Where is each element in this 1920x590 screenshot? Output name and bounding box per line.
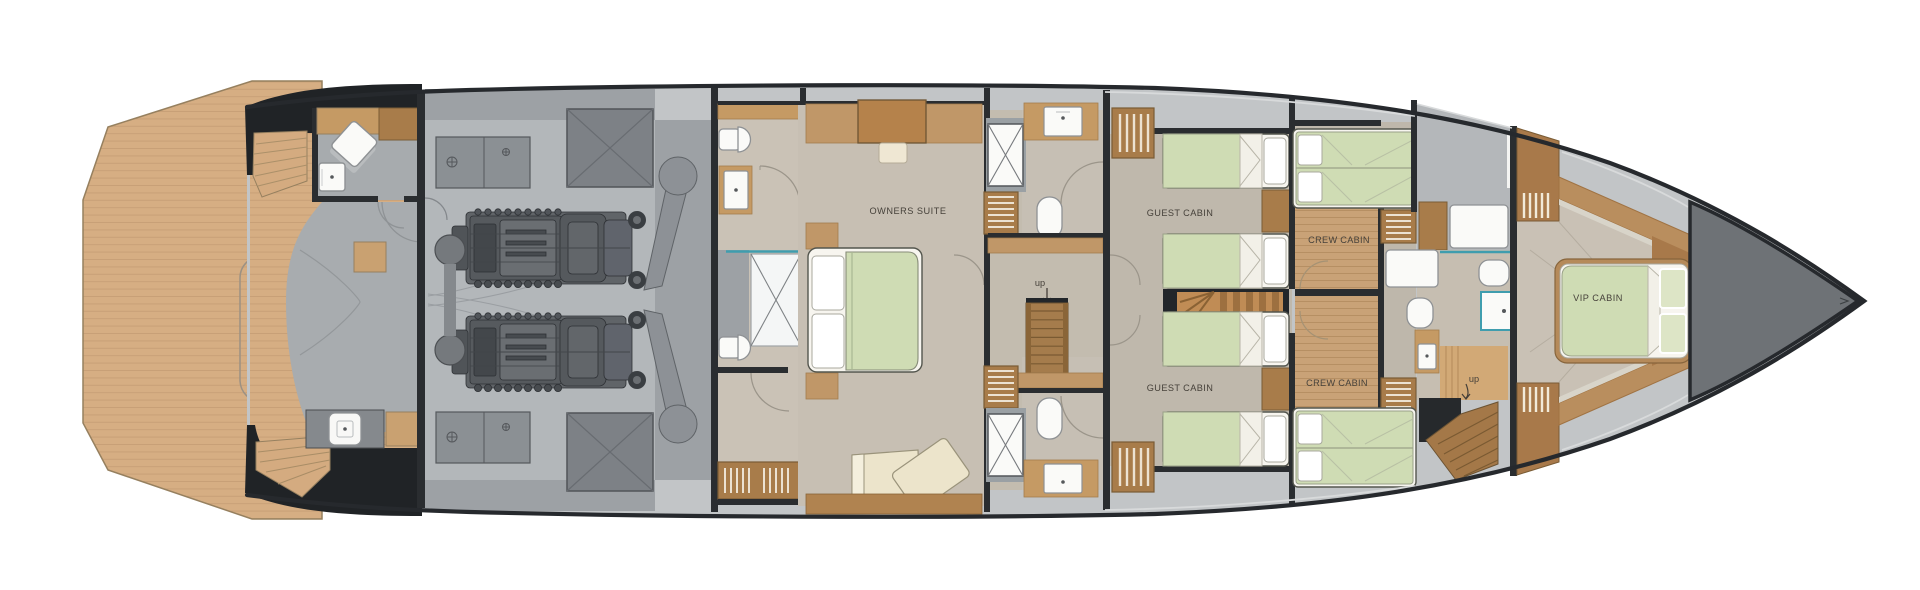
svg-text:CREW CABIN: CREW CABIN	[1308, 235, 1370, 245]
svg-text:GUEST CABIN: GUEST CABIN	[1147, 208, 1214, 218]
svg-text:VIP CABIN: VIP CABIN	[1573, 293, 1623, 303]
svg-text:CREW CABIN: CREW CABIN	[1306, 378, 1368, 388]
svg-text:up: up	[1035, 278, 1045, 288]
svg-text:up: up	[1469, 374, 1479, 384]
svg-text:GUEST CABIN: GUEST CABIN	[1147, 383, 1214, 393]
svg-text:OWNERS SUITE: OWNERS SUITE	[870, 206, 947, 216]
